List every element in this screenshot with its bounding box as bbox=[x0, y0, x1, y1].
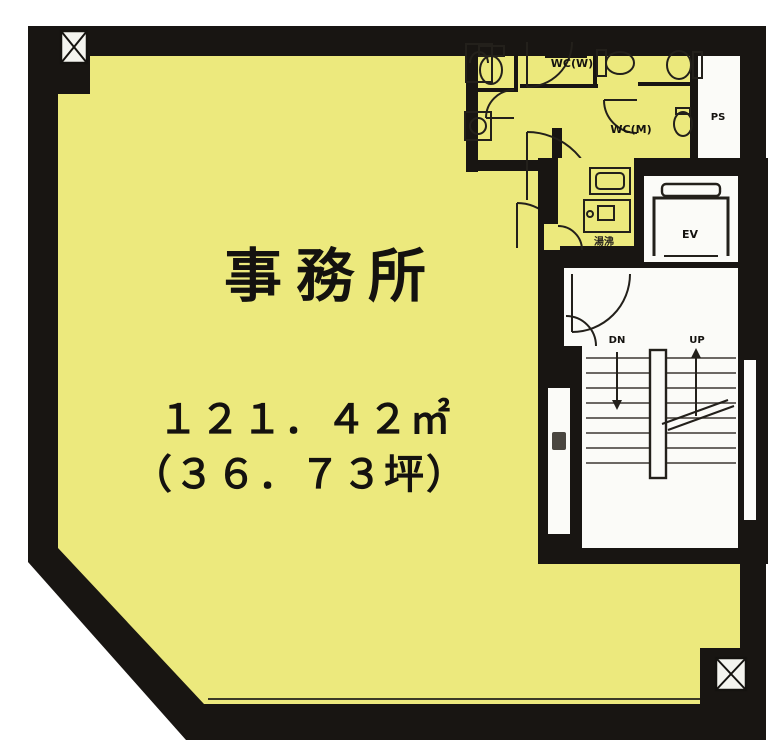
stairs-up-label: UP bbox=[689, 335, 704, 346]
elevator-hall bbox=[564, 268, 738, 346]
kitchenette-doorway bbox=[544, 224, 560, 250]
wc-men-label: WC(M) bbox=[610, 123, 651, 136]
stair-window bbox=[744, 360, 756, 520]
floor-plan: PS bbox=[0, 0, 768, 756]
shaft-mark bbox=[552, 432, 566, 450]
top-wall-stub bbox=[545, 44, 587, 58]
stairs-down-label: DN bbox=[609, 335, 626, 346]
column-marker-icon bbox=[716, 658, 746, 690]
pipe-space bbox=[698, 56, 740, 166]
duct-shaft bbox=[548, 388, 570, 534]
wc-bottom-wall bbox=[466, 160, 544, 171]
wc-left-wall bbox=[466, 56, 478, 172]
area-sqm: １２１．４２㎡ bbox=[158, 397, 452, 443]
wc-women-label: WC(W) bbox=[551, 57, 593, 70]
elevator: EV bbox=[644, 176, 738, 262]
elevator-counterweight bbox=[662, 184, 720, 196]
pipe-space-label: PS bbox=[711, 112, 726, 123]
kitchenette-label: 湯沸 bbox=[594, 235, 614, 248]
floor-plan-page: PS bbox=[0, 0, 768, 756]
stair-divider bbox=[650, 350, 666, 478]
elevator-label: EV bbox=[682, 228, 699, 241]
column-marker-icon bbox=[61, 31, 87, 63]
room-title: 事務所 bbox=[224, 242, 440, 310]
area-tsubo: （３６．７３坪） bbox=[132, 452, 468, 498]
